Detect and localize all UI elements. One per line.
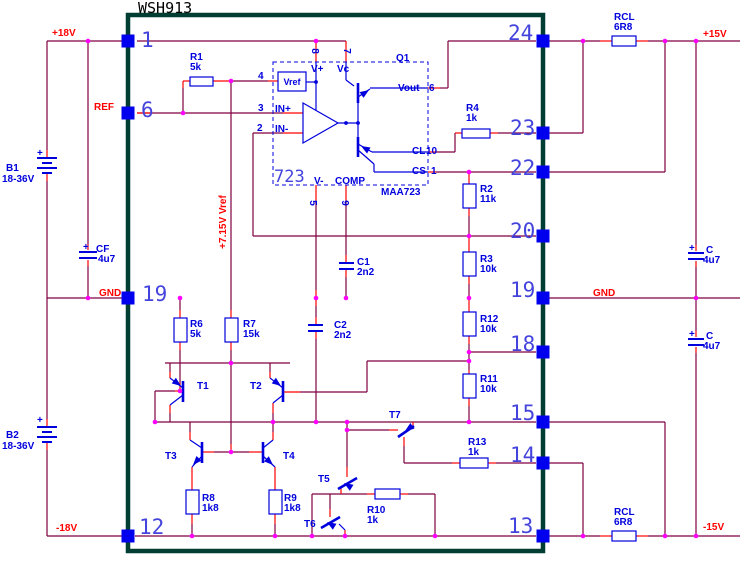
ic-internal-wire <box>190 440 202 448</box>
label-comp: COMP <box>335 176 365 187</box>
label--18v: -18V <box>56 523 77 534</box>
junction-dot <box>581 534 586 539</box>
label-cl: CL <box>412 146 425 157</box>
label-+18v: +18V <box>52 28 76 39</box>
pin-square <box>537 416 550 429</box>
label-4u7: 4u7 <box>98 254 116 265</box>
resistor-R3 <box>463 252 476 276</box>
ic-internal-wire <box>263 440 273 448</box>
label-10k: 10k <box>480 324 497 335</box>
label-ref: REF <box>94 102 114 113</box>
label-19: 19 <box>510 278 535 302</box>
label-6: 6 <box>141 98 154 122</box>
ic-internal-wire <box>170 395 183 405</box>
label-723: 723 <box>274 167 305 187</box>
label-5k: 5k <box>190 329 202 340</box>
pin-square <box>537 457 550 470</box>
pin-square <box>537 292 550 305</box>
junction-dot <box>178 389 183 394</box>
label-t1: T1 <box>197 381 209 392</box>
ic-junction-dot <box>344 121 348 125</box>
junction-dot <box>314 420 319 425</box>
pin-square <box>537 346 550 359</box>
ic-internal-wire <box>339 524 345 530</box>
pin-square <box>122 292 135 305</box>
label-14: 14 <box>510 443 535 467</box>
junction-dot <box>694 39 699 44</box>
junction-dot <box>314 39 319 44</box>
pin-square <box>537 230 550 243</box>
pin-square <box>537 530 550 543</box>
label-24: 24 <box>508 21 533 45</box>
label-vc: Vc <box>337 64 350 75</box>
junction-dot <box>314 296 319 301</box>
label-1k: 1k <box>367 515 379 526</box>
resistor-R8 <box>186 490 199 514</box>
junction-dot <box>181 111 186 116</box>
label-18: 18 <box>510 332 535 356</box>
label--15v: -15V <box>703 522 724 533</box>
junction-dot <box>467 296 472 301</box>
junction-dot <box>581 39 586 44</box>
junction-dot <box>694 296 699 301</box>
label-23: 23 <box>510 116 535 140</box>
junction-dot <box>663 534 668 539</box>
label-10: 10 <box>426 146 438 157</box>
junction-dot <box>153 420 158 425</box>
label-t2: T2 <box>250 381 262 392</box>
label-t7: T7 <box>389 410 401 421</box>
label-20: 20 <box>510 219 535 243</box>
label-11k: 11k <box>480 194 497 205</box>
junction-dot <box>345 420 350 425</box>
label-4u7: 4u7 <box>703 341 721 352</box>
label-v-: V- <box>314 176 323 187</box>
label-1k8: 1k8 <box>284 503 301 514</box>
junction-dot <box>310 534 315 539</box>
label-+15v: +15V <box>703 29 727 40</box>
label-+: + <box>37 148 43 159</box>
label-9: 9 <box>339 200 350 206</box>
label-2n2: 2n2 <box>334 330 352 341</box>
resistor-R6 <box>174 318 187 342</box>
junction-dot <box>433 534 438 539</box>
junction-dot <box>271 420 276 425</box>
junction-dot <box>467 420 472 425</box>
label-1: 1 <box>431 166 437 177</box>
resistor-R11 <box>463 374 476 398</box>
label-1: 1 <box>141 28 154 52</box>
label-4: 4 <box>258 71 264 82</box>
label-+: + <box>83 242 89 253</box>
resistor-R4 <box>462 129 490 138</box>
label-gnd: GND <box>593 288 615 299</box>
pin-square <box>537 127 550 140</box>
label-2n2: 2n2 <box>357 267 375 278</box>
label-b2: B2 <box>6 430 19 441</box>
junction-dot <box>86 296 91 301</box>
circuit-schematic: WSH913161912242322201918151413723+18VREF… <box>0 0 747 567</box>
junction-dot <box>229 450 234 455</box>
label-maa723: MAA723 <box>381 187 421 198</box>
emitter-arrow-icon <box>360 87 371 98</box>
label-1k: 1k <box>468 447 480 458</box>
label-gnd: GND <box>99 288 121 299</box>
junction-dot <box>467 350 472 355</box>
label-1k8: 1k8 <box>202 503 219 514</box>
label-in+: IN+ <box>275 104 291 115</box>
label-4u7: 4u7 <box>703 255 721 266</box>
pin-square <box>122 530 135 543</box>
pin-square <box>537 166 550 179</box>
label-22: 22 <box>510 156 535 180</box>
label-3: 3 <box>258 103 264 114</box>
pin-square <box>122 35 135 48</box>
label-cs: CS <box>412 166 426 177</box>
junction-dot <box>467 359 472 364</box>
wsh913-border <box>128 15 543 551</box>
label-t3: T3 <box>165 451 177 462</box>
label-6r8: 6R8 <box>614 22 633 33</box>
label-12: 12 <box>139 515 164 539</box>
junction-dot <box>467 234 472 239</box>
ic-junction-dot <box>314 80 318 84</box>
resistor-R13 <box>460 458 488 468</box>
label-+: + <box>689 329 695 340</box>
label-v+: V+ <box>311 64 324 75</box>
label-2: 2 <box>257 123 263 134</box>
opamp-triangle <box>303 103 338 143</box>
ic-junction-dot <box>356 121 360 125</box>
resistor-R1 <box>190 77 213 86</box>
label-wsh913: WSH913 <box>138 0 192 17</box>
label-10k: 10k <box>480 264 497 275</box>
resistor-R10 <box>375 489 400 499</box>
label-6: 6 <box>429 83 435 94</box>
label-+: + <box>37 415 43 426</box>
resistor-RCL-top <box>612 36 636 46</box>
junction-dot <box>229 79 234 84</box>
resistor-R2 <box>463 184 476 208</box>
junction-dot <box>663 39 668 44</box>
label-t6: T6 <box>304 519 316 530</box>
junction-dot <box>467 170 472 175</box>
resistor-R7 <box>225 318 238 342</box>
junction-dot <box>343 534 348 539</box>
label-8: 8 <box>309 48 320 54</box>
label-15k: 15k <box>243 329 260 340</box>
label-18-36v: 18-36V <box>2 441 35 452</box>
label-15: 15 <box>510 401 535 425</box>
pin-square <box>122 107 135 120</box>
label-in-: IN- <box>275 124 288 135</box>
label-5: 5 <box>307 200 318 206</box>
label-1k: 1k <box>466 113 478 124</box>
junction-dot <box>345 428 350 433</box>
label-13: 13 <box>508 514 533 538</box>
label-+7-15v-vref: +7.15V Vref <box>218 195 229 249</box>
label-19: 19 <box>142 282 167 306</box>
junction-dot <box>229 361 234 366</box>
pin-square <box>537 35 550 48</box>
label-b1: B1 <box>6 163 19 174</box>
label-t4: T4 <box>283 451 295 462</box>
junction-dot <box>694 534 699 539</box>
label-18-36v: 18-36V <box>2 174 35 185</box>
junction-dot <box>178 296 183 301</box>
label-vref: Vref <box>283 77 301 87</box>
ic-internal-wire <box>346 80 354 86</box>
label-+: + <box>689 243 695 254</box>
junction-dot <box>86 39 91 44</box>
junction-dot <box>273 534 278 539</box>
label-t5: T5 <box>318 474 330 485</box>
junction-dot <box>190 534 195 539</box>
resistor-RCL-bottom <box>612 531 636 541</box>
label-7: 7 <box>341 48 352 54</box>
label-5k: 5k <box>190 62 202 73</box>
label-10k: 10k <box>480 384 497 395</box>
label-vout: Vout <box>398 83 420 94</box>
label-q1: Q1 <box>396 53 410 64</box>
junction-dot <box>344 296 349 301</box>
label-6r8: 6R8 <box>614 517 633 528</box>
resistor-R9 <box>269 490 282 514</box>
resistor-R12 <box>463 312 476 336</box>
ic-internal-wire <box>273 395 283 403</box>
schematic-canvas: WSH913161912242322201918151413723+18VREF… <box>0 0 747 567</box>
